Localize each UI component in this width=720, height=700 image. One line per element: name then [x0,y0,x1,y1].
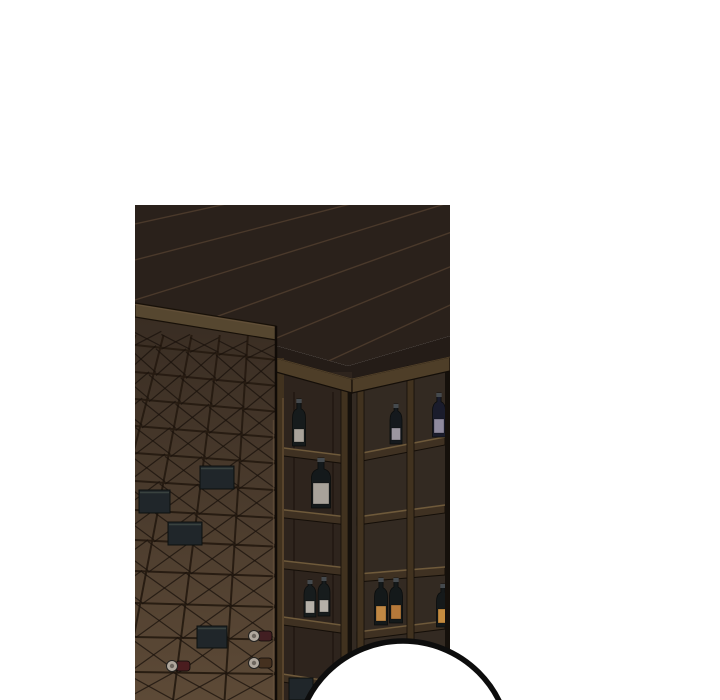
bottle-label [376,606,386,621]
rack-diagonal [100,425,135,452]
wine-crate [200,466,234,489]
lying-bottle-body [258,631,272,641]
lying-wine-bottle [249,631,273,642]
rack-diagonal [53,569,98,602]
front-shelf-unit [276,358,357,700]
rack-diagonal [63,538,106,569]
bottle-label [313,483,329,504]
rack-diagonal [91,451,128,479]
bottle-cap [378,578,383,582]
bottle-label [392,428,401,440]
rack-diagonal [21,671,72,699]
rack-diagonal [89,602,136,636]
bottle-cap [393,578,398,582]
rack-diagonal [73,508,114,538]
bottle-cap [307,580,312,584]
rack-diagonal [89,602,136,636]
rack-diagonal [72,671,123,699]
wine-crate [168,522,202,545]
lying-wine-bottle [249,658,273,669]
panel-interior [19,152,462,700]
rack-diagonal [80,636,129,671]
rack-diagonal [53,569,98,602]
bottle-label [294,429,304,442]
wine-rack [19,303,276,700]
rack-diagonal [72,671,123,699]
rack-diagonal [31,636,80,671]
rack-diagonal [73,508,114,538]
bottle-label [306,601,315,613]
wine-cellar-panel-illustration [0,0,720,700]
comic-page [0,0,720,700]
rack-diagonal [82,479,121,508]
bottle-cap [321,577,326,581]
rack-diagonal [100,425,135,452]
lying-bottle-body [258,658,272,668]
rack-diagonal [42,601,89,636]
lying-bottle-body [176,661,190,671]
wine-crate [197,626,227,648]
bottle-cap [440,584,445,588]
rack-vertical [19,335,136,700]
rack-diagonal [31,636,80,671]
bottle-cap [436,393,441,397]
rack-diagonal [21,671,72,699]
bottle-cap [296,399,301,403]
rack-diagonal [63,538,106,569]
bottle-label [320,600,329,612]
wine-crate [139,490,170,513]
lying-wine-bottle [167,661,191,672]
unit-right-pillar [341,381,348,700]
rack-diagonal [80,636,129,671]
bottle-cap [317,458,324,462]
rack-diagonal [82,479,121,508]
bottle-label [434,419,444,433]
rack-diagonal [42,601,89,636]
bottle-cap [393,404,398,408]
bottle-label [391,605,401,619]
rack-diagonal [91,451,128,479]
